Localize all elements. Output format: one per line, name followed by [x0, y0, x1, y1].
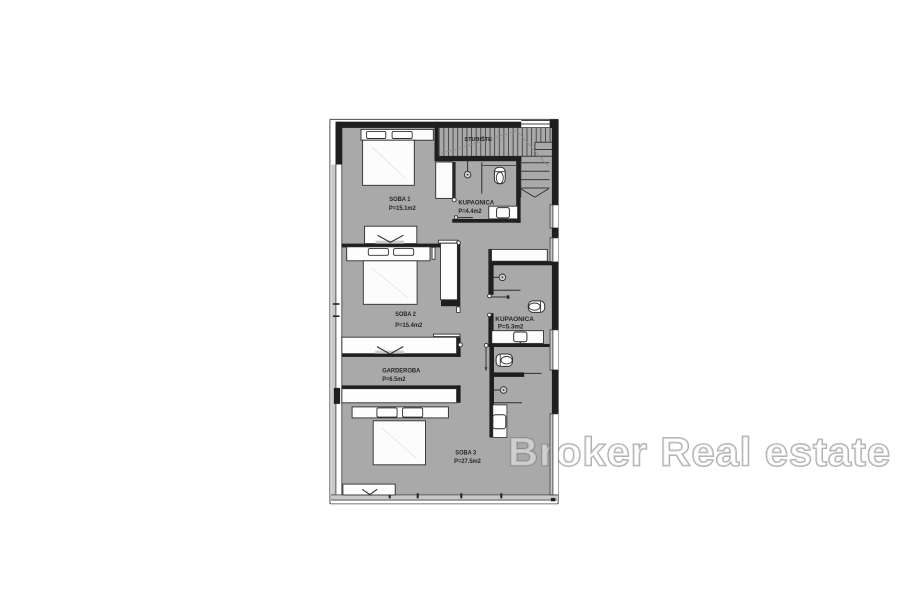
svg-text:SOBA 2: SOBA 2 — [395, 311, 416, 318]
svg-text:Broker Real estate: Broker Real estate — [508, 431, 891, 475]
svg-text:SOBA 3: SOBA 3 — [455, 450, 476, 457]
svg-text:GARDEROBA: GARDEROBA — [382, 367, 420, 374]
svg-text:P=15.1m2: P=15.1m2 — [389, 205, 416, 212]
svg-text:P=27.5m2: P=27.5m2 — [454, 458, 481, 465]
svg-text:P=4.4m2: P=4.4m2 — [458, 208, 482, 215]
svg-text:SOBA 1: SOBA 1 — [389, 196, 411, 203]
svg-text:KUPAONICA: KUPAONICA — [495, 316, 534, 323]
svg-text:STUBIŠTE: STUBIŠTE — [464, 135, 492, 143]
svg-text:P=15.4m2: P=15.4m2 — [395, 322, 422, 329]
svg-text:KUPAONICA: KUPAONICA — [458, 200, 494, 207]
svg-text:P=5.3m2: P=5.3m2 — [498, 323, 524, 330]
svg-text:P=6.5m2: P=6.5m2 — [382, 376, 406, 383]
